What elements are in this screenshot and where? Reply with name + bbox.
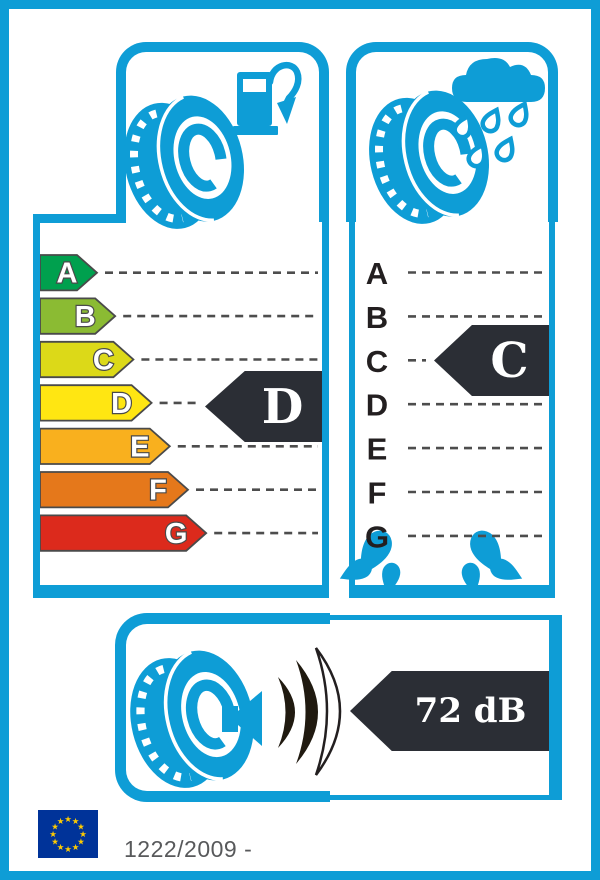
eu-flag-stars: ★★★★★★★★★★★★ bbox=[38, 810, 98, 858]
wet-grip-pictogram-box bbox=[346, 42, 558, 222]
tyre-label: ABCDEFG ABCDEFG D C 72 dB ★★★★★★★★★★★★ 1… bbox=[0, 0, 600, 880]
eu-flag: ★★★★★★★★★★★★ bbox=[38, 810, 98, 858]
noise-value: 72 dB bbox=[415, 691, 527, 731]
regulation-number: 1222/2009 - bbox=[124, 836, 252, 863]
eu-star: ★ bbox=[57, 817, 65, 827]
wet-grip-scale-box bbox=[349, 222, 555, 598]
wet-grip-rating-value: C bbox=[490, 333, 528, 389]
noise-box-left bbox=[115, 613, 330, 802]
fuel-efficiency-pictogram-box bbox=[116, 42, 329, 222]
noise-rating-arrow: 72 dB bbox=[350, 671, 549, 751]
fuel-efficiency-rating-value: D bbox=[262, 379, 304, 435]
eu-star: ★ bbox=[72, 843, 80, 853]
eu-star: ★ bbox=[64, 845, 72, 855]
